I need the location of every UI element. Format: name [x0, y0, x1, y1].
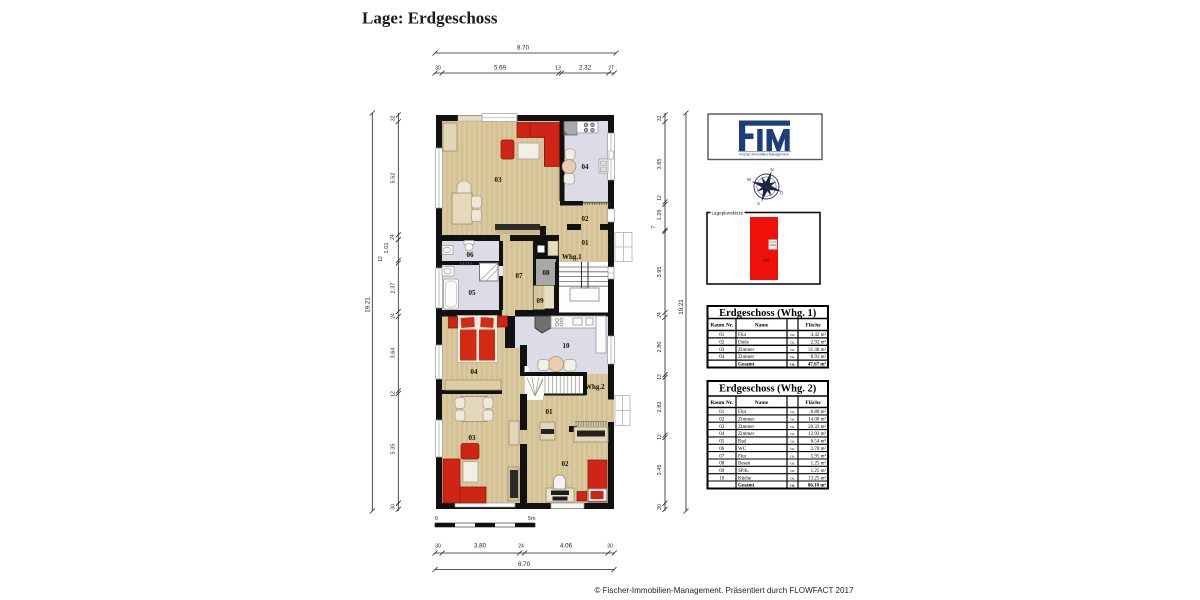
svg-text:ca.: ca. — [790, 461, 795, 466]
svg-text:Besen: Besen — [738, 462, 751, 467]
svg-text:2.32: 2.32 — [579, 65, 592, 72]
svg-text:24: 24 — [390, 234, 396, 240]
svg-text:ca.: ca. — [790, 409, 795, 414]
svg-text:10: 10 — [719, 476, 725, 481]
svg-text:3.45: 3.45 — [657, 465, 663, 476]
svg-text:12: 12 — [391, 391, 397, 397]
svg-text:Whg.2: Whg.2 — [585, 383, 605, 391]
svg-text:12: 12 — [657, 195, 663, 201]
svg-text:2.82: 2.82 — [657, 402, 663, 413]
svg-text:30: 30 — [657, 504, 663, 510]
svg-text:Gesamt: Gesamt — [738, 363, 755, 368]
svg-text:2.78 m²: 2.78 m² — [811, 446, 827, 452]
svg-text:S: S — [757, 201, 760, 206]
svg-text:Gesamt: Gesamt — [738, 484, 755, 489]
svg-text:05: 05 — [719, 440, 725, 445]
svg-text:02: 02 — [719, 418, 725, 423]
svg-text:27: 27 — [608, 66, 614, 72]
svg-text:04: 04 — [719, 432, 725, 437]
svg-text:04: 04 — [719, 355, 725, 360]
svg-text:13: 13 — [555, 66, 561, 72]
svg-text:ca.: ca. — [790, 417, 795, 422]
svg-text:32: 32 — [391, 115, 397, 121]
svg-text:2.80: 2.80 — [657, 342, 663, 353]
svg-text:3.95: 3.95 — [657, 267, 663, 278]
svg-text:Zimmer: Zimmer — [738, 432, 754, 437]
svg-text:Zimmer: Zimmer — [738, 355, 754, 360]
svg-text:07: 07 — [719, 454, 725, 459]
svg-text:12: 12 — [657, 434, 663, 440]
svg-text:Erdgeschoss (Whg. 2): Erdgeschoss (Whg. 2) — [719, 383, 817, 394]
svg-text:4.06: 4.06 — [560, 543, 573, 550]
svg-text:N: N — [770, 167, 773, 172]
svg-text:ca.: ca. — [790, 468, 795, 473]
svg-text:0: 0 — [435, 516, 438, 522]
svg-text:Whg.1: Whg.1 — [562, 253, 582, 261]
svg-text:3.80: 3.80 — [474, 543, 487, 550]
svg-text:© Fischer-Immobilien-Managemen: © Fischer-Immobilien-Management. Präsent… — [594, 586, 854, 595]
svg-text:1.25 m²: 1.25 m² — [811, 461, 827, 467]
svg-text:FIM: FIM — [763, 259, 769, 263]
svg-text:ca.: ca. — [790, 453, 795, 458]
svg-text:Diele: Diele — [738, 340, 750, 345]
svg-text:ca.: ca. — [790, 347, 795, 352]
svg-text:Zimmer: Zimmer — [738, 418, 754, 423]
svg-text:7: 7 — [651, 225, 657, 228]
svg-text:1.26: 1.26 — [657, 210, 663, 221]
svg-text:20.33 m²: 20.33 m² — [808, 424, 826, 430]
svg-text:2.92 m²: 2.92 m² — [811, 339, 827, 345]
svg-text:WC: WC — [738, 447, 747, 452]
svg-text:04: 04 — [471, 368, 479, 376]
svg-text:ca.: ca. — [790, 362, 795, 367]
svg-text:09: 09 — [719, 469, 725, 474]
svg-text:86.10 m²: 86.10 m² — [808, 483, 827, 489]
svg-text:32: 32 — [657, 115, 663, 121]
svg-text:30: 30 — [435, 544, 441, 550]
svg-text:ca.: ca. — [790, 332, 795, 337]
svg-text:14.00 m²: 14.00 m² — [808, 417, 826, 423]
svg-text:5m: 5m — [528, 516, 536, 522]
svg-text:Flur: Flur — [738, 333, 747, 338]
svg-text:ca.: ca. — [790, 354, 795, 359]
svg-text:5.35: 5.35 — [391, 444, 397, 455]
svg-text:01: 01 — [719, 410, 725, 415]
svg-text:02: 02 — [562, 460, 570, 468]
svg-text:1.01: 1.01 — [384, 243, 390, 254]
svg-text:05: 05 — [469, 289, 477, 297]
svg-text:12: 12 — [378, 256, 384, 262]
svg-text:06: 06 — [719, 447, 725, 452]
svg-text:8.70: 8.70 — [518, 561, 531, 568]
svg-text:12: 12 — [657, 374, 663, 380]
svg-text:24: 24 — [391, 313, 397, 319]
svg-text:02: 02 — [582, 215, 590, 223]
svg-text:Bad: Bad — [738, 440, 747, 445]
svg-text:2.37: 2.37 — [391, 283, 397, 294]
svg-text:Name: Name — [755, 323, 769, 329]
svg-text:Fischer Immobilien Management: Fischer Immobilien Management — [739, 153, 788, 157]
svg-text:01: 01 — [719, 333, 725, 338]
svg-text:03: 03 — [719, 425, 725, 430]
svg-text:01: 01 — [582, 239, 590, 247]
svg-text:ca.: ca. — [790, 483, 795, 488]
svg-text:10: 10 — [563, 342, 571, 350]
svg-text:03: 03 — [719, 348, 725, 353]
svg-text:30: 30 — [607, 544, 613, 550]
svg-text:09: 09 — [537, 297, 545, 305]
svg-text:Küche: Küche — [738, 476, 752, 481]
svg-text:Lage: Erdgeschoss: Lage: Erdgeschoss — [362, 9, 498, 28]
svg-text:Raum Nr.: Raum Nr. — [710, 323, 733, 329]
svg-text:3.85: 3.85 — [657, 159, 663, 170]
svg-text:08: 08 — [543, 269, 551, 277]
svg-text:Flur: Flur — [738, 454, 747, 459]
svg-text:02: 02 — [719, 340, 725, 345]
svg-text:08: 08 — [719, 462, 725, 467]
svg-text:6.54 m²: 6.54 m² — [811, 439, 827, 445]
svg-text:SP.K.: SP.K. — [738, 469, 749, 474]
svg-text:04: 04 — [582, 163, 590, 171]
svg-text:W: W — [747, 177, 751, 182]
svg-text:24: 24 — [518, 544, 524, 550]
svg-text:ca.: ca. — [790, 339, 795, 344]
svg-text:31.40 m²: 31.40 m² — [808, 347, 826, 353]
svg-text:01: 01 — [546, 408, 554, 416]
svg-text:6.80 m²: 6.80 m² — [811, 409, 827, 415]
svg-text:Name: Name — [755, 400, 769, 406]
svg-text:8.93 m²: 8.93 m² — [811, 354, 827, 360]
svg-text:4.42 m²: 4.42 m² — [811, 332, 827, 338]
svg-text:Raum Nr.: Raum Nr. — [710, 400, 733, 406]
svg-text:ca.: ca. — [790, 439, 795, 444]
svg-text:1.25 m²: 1.25 m² — [811, 468, 827, 474]
svg-text:24: 24 — [657, 312, 663, 318]
svg-text:Flur: Flur — [738, 410, 747, 415]
svg-text:5.95 m²: 5.95 m² — [811, 453, 827, 459]
svg-text:ca.: ca. — [790, 446, 795, 451]
svg-text:ca.: ca. — [790, 475, 795, 480]
svg-text:8.70: 8.70 — [517, 45, 530, 52]
svg-text:19.21: 19.21 — [678, 299, 685, 315]
svg-text:5.69: 5.69 — [494, 65, 507, 72]
svg-text:Lageplanskizze: Lageplanskizze — [712, 211, 744, 216]
svg-text:5.52: 5.52 — [391, 173, 397, 184]
svg-text:Erdgeschoss (Whg. 1): Erdgeschoss (Whg. 1) — [719, 308, 817, 319]
svg-text:Fläche: Fläche — [805, 323, 821, 329]
svg-text:ca.: ca. — [790, 431, 795, 436]
svg-text:ca.: ca. — [790, 424, 795, 429]
svg-text:Fläche: Fläche — [805, 400, 821, 406]
svg-text:30: 30 — [435, 66, 441, 72]
svg-text:03: 03 — [495, 176, 503, 184]
svg-text:Zimmer: Zimmer — [738, 425, 754, 430]
svg-text:13.93 m²: 13.93 m² — [808, 431, 826, 437]
svg-text:30: 30 — [391, 504, 397, 510]
svg-text:Zimmer: Zimmer — [738, 348, 754, 353]
svg-text:3.64: 3.64 — [391, 348, 397, 359]
svg-text:06: 06 — [467, 251, 475, 259]
svg-text:03: 03 — [469, 434, 477, 442]
svg-text:13.25 m²: 13.25 m² — [808, 475, 826, 481]
svg-text:47.67 m²: 47.67 m² — [808, 362, 827, 368]
svg-text:19.21: 19.21 — [365, 297, 372, 313]
svg-text:07: 07 — [516, 272, 524, 280]
